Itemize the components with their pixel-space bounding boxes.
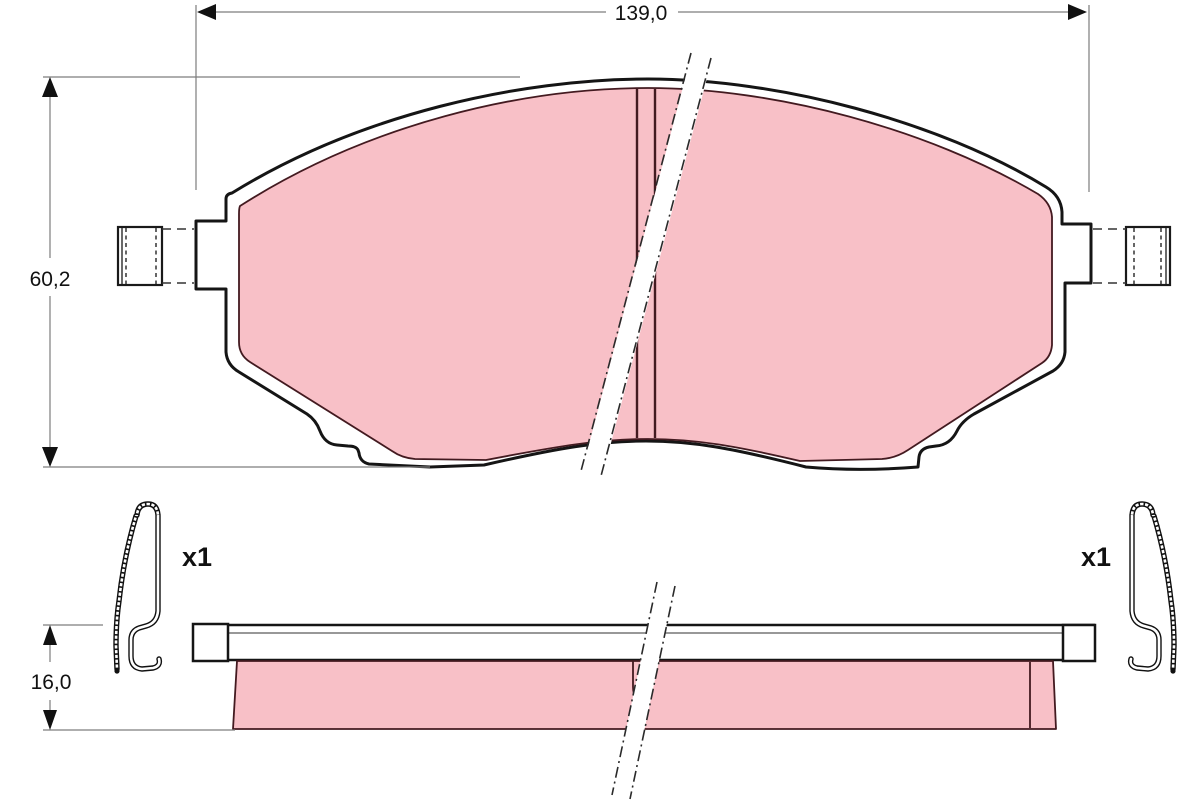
- clip-wire-body-core: [131, 516, 159, 669]
- brake-pad-technical-drawing: 139,0 60,2 16,0 x1: [0, 0, 1200, 800]
- clip-wire-body-core: [1131, 516, 1159, 669]
- clip-wire-body: [1131, 516, 1159, 669]
- clip-wire-tip: [1170, 668, 1175, 673]
- plate-right-end-block: [1063, 625, 1095, 661]
- side-view: [193, 582, 1095, 799]
- drawing-canvas: 139,0 60,2 16,0 x1: [0, 0, 1200, 800]
- left-clip-quantity-label: x1: [182, 542, 212, 572]
- thickness-dimension-label: 16,0: [31, 671, 72, 694]
- arrow-left-icon: [197, 4, 216, 20]
- right-spring-clip: [1131, 504, 1176, 674]
- plate-left-end-block: [193, 624, 228, 661]
- right-clip-quantity-label: x1: [1081, 542, 1111, 572]
- left-spring-clip: [114, 504, 159, 674]
- height-dimension-label: 60,2: [30, 268, 71, 291]
- width-dimension-label: 139,0: [615, 2, 668, 25]
- front-view: [118, 53, 1170, 476]
- clip-wire-body: [131, 516, 159, 669]
- right-hidden-block-rect: [1126, 227, 1170, 285]
- arrow-up-icon: [43, 625, 57, 645]
- arrow-down-icon: [42, 447, 58, 467]
- arrow-up-icon: [42, 77, 58, 97]
- arrow-down-icon: [43, 710, 57, 730]
- left-hidden-block: [118, 227, 194, 285]
- right-hidden-block: [1093, 227, 1170, 285]
- arrow-right-icon: [1068, 4, 1087, 20]
- clip-wire-tip: [114, 668, 119, 673]
